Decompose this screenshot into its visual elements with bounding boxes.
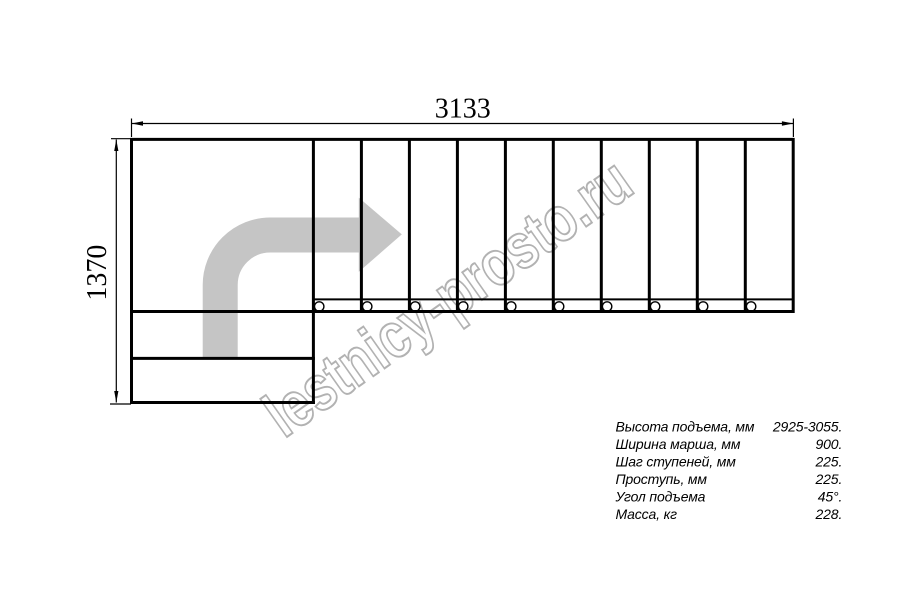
svg-text:1370: 1370	[82, 245, 113, 301]
svg-text:Угол подъема: Угол подъема	[615, 489, 706, 505]
svg-text:Проступь, мм: Проступь, мм	[616, 471, 708, 487]
svg-text:228.: 228.	[815, 506, 843, 522]
svg-text:900.: 900.	[816, 436, 843, 452]
svg-text:45°.: 45°.	[818, 489, 842, 505]
svg-text:225.: 225.	[815, 471, 843, 487]
svg-text:3133: 3133	[435, 94, 491, 125]
svg-text:2925-3055.: 2925-3055.	[772, 419, 842, 435]
svg-text:lestnicy-prosto.ru: lestnicy-prosto.ru	[251, 144, 645, 451]
svg-text:Шаг ступеней, мм: Шаг ступеней, мм	[616, 454, 737, 470]
svg-text:Ширина марша, мм: Ширина марша, мм	[616, 436, 741, 452]
svg-text:Масса, кг: Масса, кг	[616, 506, 678, 522]
svg-text:225.: 225.	[815, 454, 843, 470]
svg-text:Высота подъема, мм: Высота подъема, мм	[616, 419, 755, 435]
